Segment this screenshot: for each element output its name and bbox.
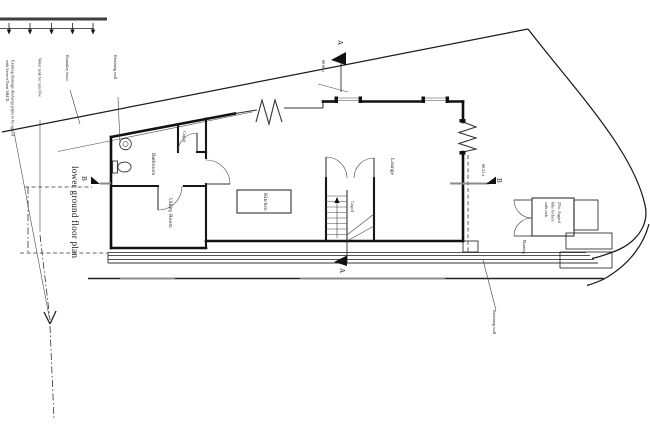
labels: lower ground floor plan Bathroom Cup'd U… — [5, 55, 562, 335]
room-label-kitchen: Kitchen — [262, 193, 268, 211]
planting-label: Planting — [522, 240, 527, 254]
section-marker-a-top: A 66.08 x — [318, 40, 348, 92]
spot-level-tick — [318, 84, 348, 92]
boundary-line-top — [2, 29, 528, 132]
annotation-water-tank: Water tank for rain O/w — [38, 58, 43, 97]
spot-level-a: 66.08 x — [321, 60, 326, 72]
boundary-line-right-curve — [528, 29, 646, 259]
reference-lines — [14, 90, 496, 420]
drainage-leader — [14, 132, 49, 316]
drain-run-line-lower — [50, 326, 54, 420]
scale-bar — [0, 19, 107, 35]
zigzag-symbol-top — [256, 100, 282, 124]
bike-store-doors — [514, 200, 532, 236]
staircase — [326, 157, 374, 241]
window-jamb-icon — [335, 97, 339, 104]
toilet-bowl-icon — [118, 162, 131, 172]
step-platform-2 — [560, 252, 612, 268]
interior-walls — [111, 119, 206, 242]
bathroom-fixtures — [113, 138, 132, 173]
winder-line — [347, 214, 374, 235]
corner-step — [463, 241, 478, 252]
basin-icon — [120, 138, 132, 150]
floor-plan-svg: A 66.08 x A B B 66.53 x lower ground flo… — [0, 0, 650, 433]
window-1 — [335, 97, 363, 104]
toilet-cistern-icon — [113, 161, 118, 173]
building-walls — [111, 100, 478, 252]
bike-store-label-3: with rack — [544, 202, 549, 218]
basin-drain-icon — [123, 141, 128, 146]
annotation-drainage-1: Existing drainage discharge pipes to be … — [11, 60, 16, 136]
section-b-letter: B — [80, 176, 88, 181]
section-a-flag-icon — [331, 52, 346, 65]
section-a-letter: A — [338, 268, 346, 274]
section-b-flag-icon — [486, 177, 496, 185]
stair-door-2 — [354, 158, 374, 178]
step-platform-1 — [566, 233, 612, 249]
annotation-boundary-fence: Boundary fence — [65, 55, 70, 81]
annotation-drainage-2: with Severn Trent S&CD — [5, 60, 10, 102]
drawing-title: lower ground floor plan — [70, 166, 80, 258]
bike-store-label-2: bike lockers — [551, 202, 556, 222]
room-label-bathroom: Bathroom — [150, 153, 156, 176]
kitchen-door — [206, 160, 230, 184]
retaining-wall-bottom-leader — [483, 260, 496, 310]
wall-top-sloped — [111, 114, 235, 138]
section-b-flag-icon — [91, 177, 100, 185]
section-marker-b-right: B 66.53 x — [450, 164, 503, 184]
stair-door-1 — [326, 157, 347, 178]
zigzag-symbol-right — [459, 122, 476, 152]
floor-plan-drawing: A 66.08 x A B B 66.53 x lower ground flo… — [0, 0, 650, 433]
section-a-letter: A — [336, 40, 344, 46]
section-marker-a-bottom: A — [334, 238, 347, 274]
spot-level-b: 66.53 x — [481, 164, 486, 176]
annotation-retaining-wall-bottom: Retaining wall — [492, 310, 497, 335]
section-marker-b-left: B — [80, 176, 111, 184]
section-a-flag-icon — [334, 256, 347, 267]
retaining-wall-line — [58, 112, 252, 152]
window-jamb-icon — [422, 97, 426, 104]
window-2 — [422, 97, 450, 104]
bike-store-label-1: 2No. Asgard — [557, 202, 562, 223]
window-jamb-icon — [359, 97, 363, 104]
room-label-stairs-cupboard: Cup'd — [350, 201, 355, 212]
section-b-letter: B — [495, 178, 503, 183]
bike-store-annex — [574, 200, 598, 230]
room-label-utility: Utility Room — [167, 198, 173, 228]
window-jamb-icon — [446, 97, 450, 104]
stair-direction-arrow-icon — [334, 197, 339, 203]
annotation-retaining-wall-top: Retaining wall — [113, 55, 118, 80]
stair-treads — [326, 196, 374, 241]
room-label-lounge: Lounge — [389, 158, 395, 176]
winder-line — [347, 226, 374, 241]
room-label-cupboard: Cup'd — [182, 131, 187, 142]
zigzag-end-tab-top — [460, 119, 466, 123]
